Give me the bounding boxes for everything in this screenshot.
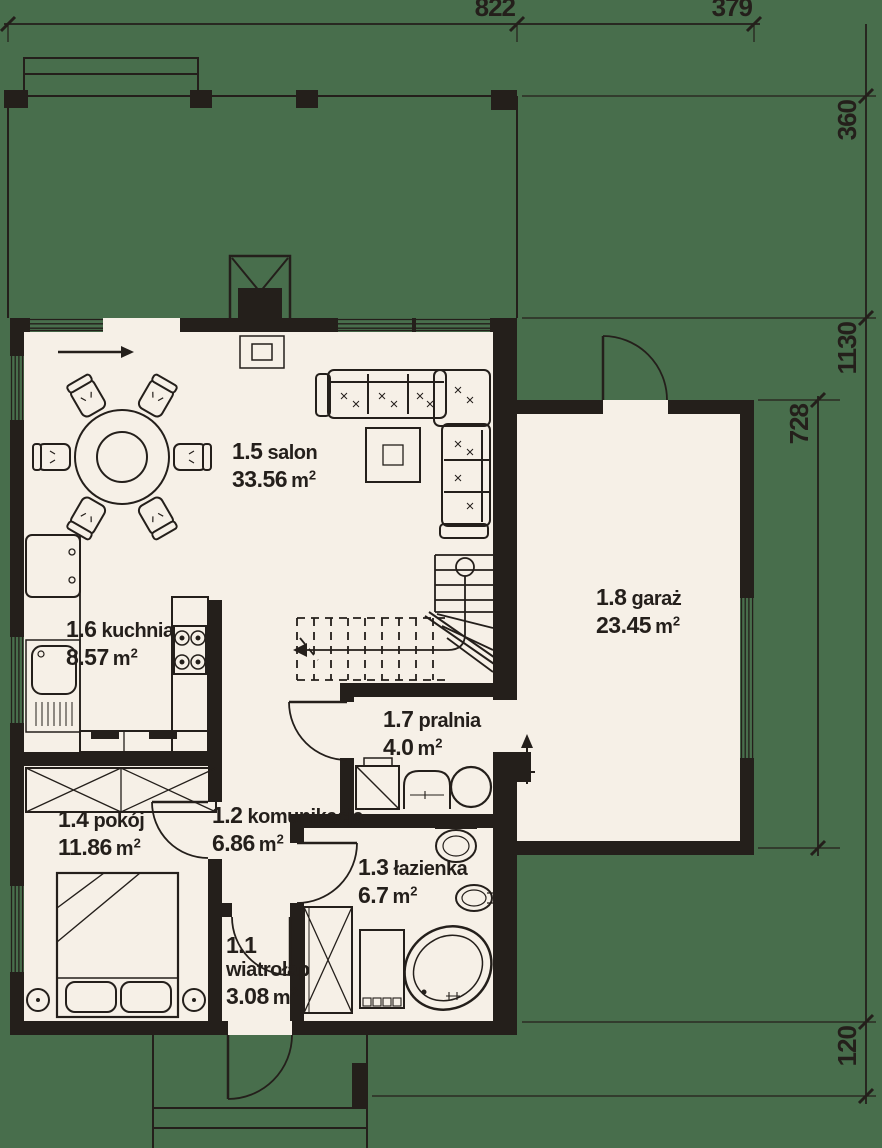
room-label-garaz: 1.8garaż 23.45m2: [596, 584, 681, 639]
room-label-wiatrolap: 1.1wiatrołap 3.08m2: [226, 932, 309, 1010]
room-label-pokoj: 1.4pokój 11.86m2: [58, 806, 144, 861]
dimension-right-1130: 1130: [832, 322, 863, 374]
floor-plan-drawing: [0, 0, 882, 1148]
dimension-top-379: 379: [620, 0, 752, 23]
dimension-inner-728: 728: [784, 404, 815, 444]
window-icon: [10, 637, 24, 723]
dimension-right-120: 120: [832, 1026, 863, 1066]
room-label-salon: 1.5salon 33.56m2: [232, 438, 317, 493]
garage-door-icon: [603, 336, 667, 400]
fireplace-icon: [230, 256, 290, 322]
window-icon: [338, 318, 490, 332]
entrance-door-icon: [228, 1035, 292, 1099]
room-label-pralnia: 1.7pralnia 4.0m2: [383, 706, 481, 761]
window-icon: [10, 356, 24, 420]
dimension-right-360: 360: [832, 100, 863, 140]
room-label-lazienka: 1.3łazienka 6.7m2: [358, 854, 467, 909]
terrace-column-icon: [4, 90, 517, 110]
floor-plan: 822 379 360 1130 120 728 1.5salon 33.56m…: [0, 0, 882, 1148]
terrace: [4, 58, 517, 322]
room-label-kuchnia: 1.6kuchnia 8.57m2: [66, 616, 174, 671]
dining-table-icon: [75, 410, 169, 504]
room-label-komunikacja: 1.2komunikacja 6.86m2: [212, 802, 363, 857]
window-icon: [10, 886, 24, 972]
window-icon: [740, 598, 754, 758]
dimension-top-822: 822: [380, 0, 515, 23]
